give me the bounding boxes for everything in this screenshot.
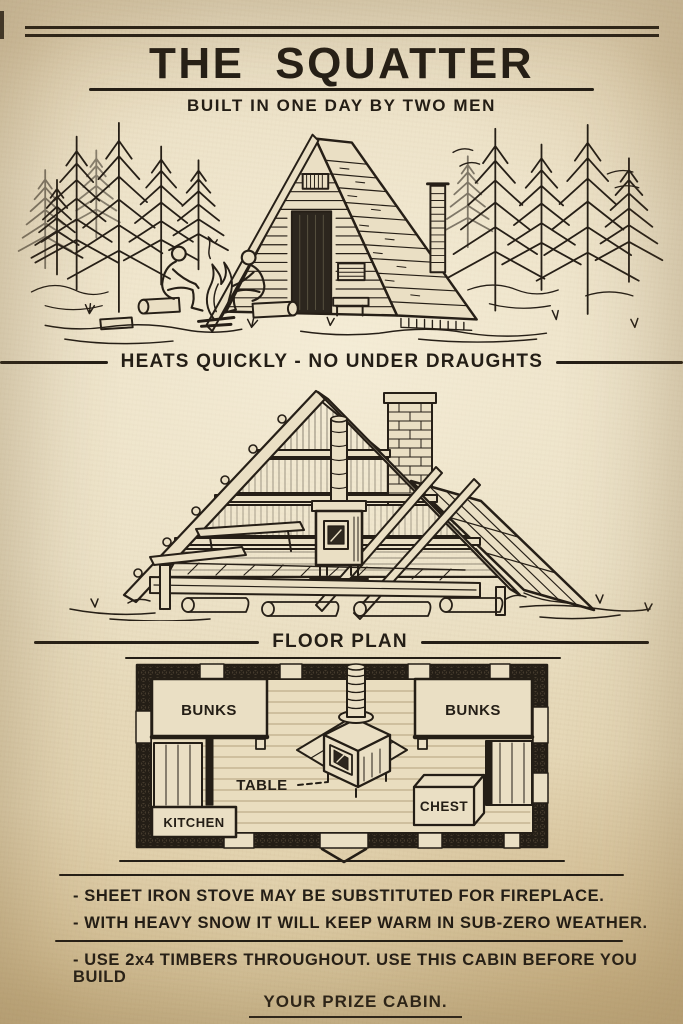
cabin [206, 135, 479, 332]
forest-right [443, 125, 662, 314]
right-counter [486, 741, 532, 805]
top-double-rule [25, 26, 659, 37]
note-line: - SHEET IRON STOVE MAY BE SUBSTITUTED FO… [73, 888, 683, 905]
divider-line [34, 641, 259, 644]
divider-heats: HEATS QUICKLY - NO UNDER DRAUGHTS [0, 351, 683, 373]
table-label: TABLE [236, 777, 287, 794]
cabin-chimney [430, 186, 445, 272]
caption-floor-plan: FLOOR PLAN [272, 631, 408, 653]
page-title: THE SQUATTER [0, 43, 683, 85]
notes-section: - SHEET IRON STOVE MAY BE SUBSTITUTED FO… [73, 888, 683, 1018]
door-opening [320, 833, 368, 848]
chest-box: CHEST [414, 775, 484, 825]
forest-left [19, 123, 228, 312]
divider-floor-plan: FLOOR PLAN [0, 631, 683, 653]
page-subtitle: BUILT IN ONE DAY BY TWO MEN [0, 97, 683, 116]
cabin-exterior-illustration [0, 117, 683, 345]
poster: THE SQUATTER BUILT IN ONE DAY BY TWO MEN [0, 0, 683, 1024]
kitchen-box: KITCHEN [152, 807, 236, 837]
divider-line [421, 641, 649, 644]
prize-cabin-text: YOUR PRIZE CABIN. [249, 992, 461, 1018]
cabin-cutaway-illustration [0, 381, 683, 621]
caption-heats: HEATS QUICKLY - NO UNDER DRAUGHTS [121, 351, 543, 373]
scan-artifact [0, 11, 4, 39]
floor-plan-diagram: BUNKS TABLE KITCHEN BUNKS CHEST [112, 655, 572, 865]
log-skids [182, 598, 503, 616]
bunks-left-label: BUNKS [181, 702, 237, 719]
kitchen-label: KITCHEN [163, 815, 224, 830]
divider-line [556, 361, 683, 364]
divider-line [0, 361, 108, 364]
prize-cabin-row: YOUR PRIZE CABIN. [73, 992, 638, 1018]
cabin-door [292, 212, 331, 314]
chest-label: CHEST [419, 799, 468, 814]
bench [333, 298, 368, 306]
title-underline [89, 88, 594, 91]
notes-mid-rule [55, 940, 623, 942]
bunks-right-box: BUNKS [415, 679, 532, 749]
notes-top-rule [59, 874, 624, 876]
bunks-right-label: BUNKS [445, 702, 501, 719]
note-line: - USE 2x4 TIMBERS THROUGHOUT. USE THIS C… [73, 952, 683, 986]
note-line: - WITH HEAVY SNOW IT WILL KEEP WARM IN S… [73, 915, 683, 932]
